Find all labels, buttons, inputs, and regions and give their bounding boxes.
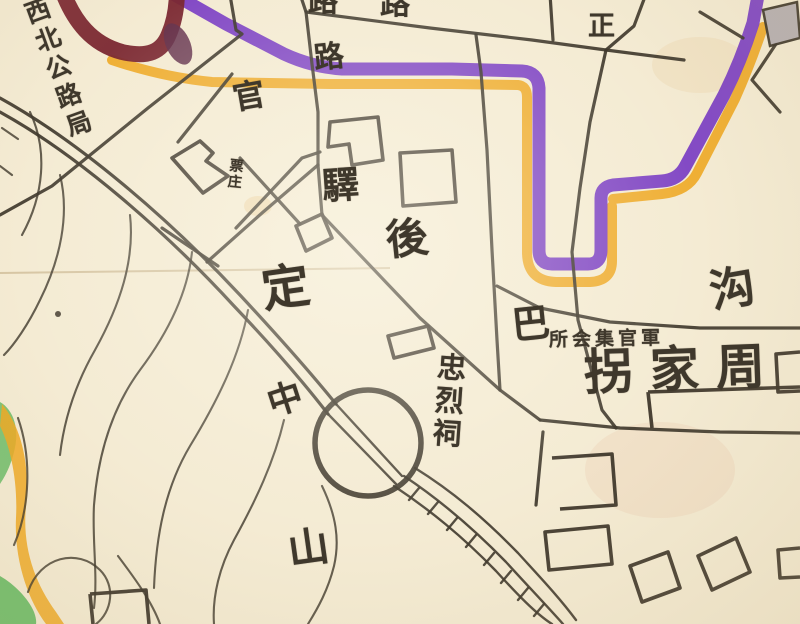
building-northwest	[172, 141, 228, 193]
road-top-diagonal	[306, 12, 684, 60]
label-piao-zhuang: 票庄	[224, 157, 242, 190]
city-wall-purple	[166, 0, 759, 264]
building-square	[400, 150, 456, 206]
label-shan: 山	[285, 524, 332, 572]
river-maroon	[62, 0, 198, 69]
label-station: 驛	[321, 167, 361, 208]
map-canvas	[0, 0, 800, 624]
building-south-1	[545, 526, 612, 570]
label-ding: 定	[259, 261, 314, 318]
railway-track	[394, 468, 576, 624]
label-lu-partial-2: 路	[380, 0, 410, 21]
terrain-contours	[0, 112, 337, 624]
building-l-shape	[328, 117, 383, 165]
roundabout-circle	[315, 390, 421, 496]
building-south-3	[698, 538, 750, 590]
label-gou: 沟	[706, 262, 759, 316]
label-zheng: 正	[588, 12, 615, 40]
gray-building	[763, 2, 800, 46]
label-martyrs-shrine: 忠烈祠	[428, 351, 465, 452]
terrain-edge-strips	[0, 402, 64, 624]
building-south-2	[630, 552, 680, 602]
historical-city-map: 西北公路局 官 路 路 路 驛 票庄 後 正 定 中 山 巴 沟 忠烈祠 所会集…	[0, 0, 800, 624]
label-guan: 官	[230, 77, 267, 116]
buildings	[90, 2, 800, 624]
label-zhou-jia-guai: 拐家周	[583, 341, 783, 399]
label-hou: 後	[384, 216, 430, 264]
building-near-circle	[388, 326, 434, 358]
label-lu-partial-1: 路	[308, 0, 338, 18]
label-ba: 巴	[510, 304, 552, 348]
label-lu: 路	[312, 41, 345, 75]
